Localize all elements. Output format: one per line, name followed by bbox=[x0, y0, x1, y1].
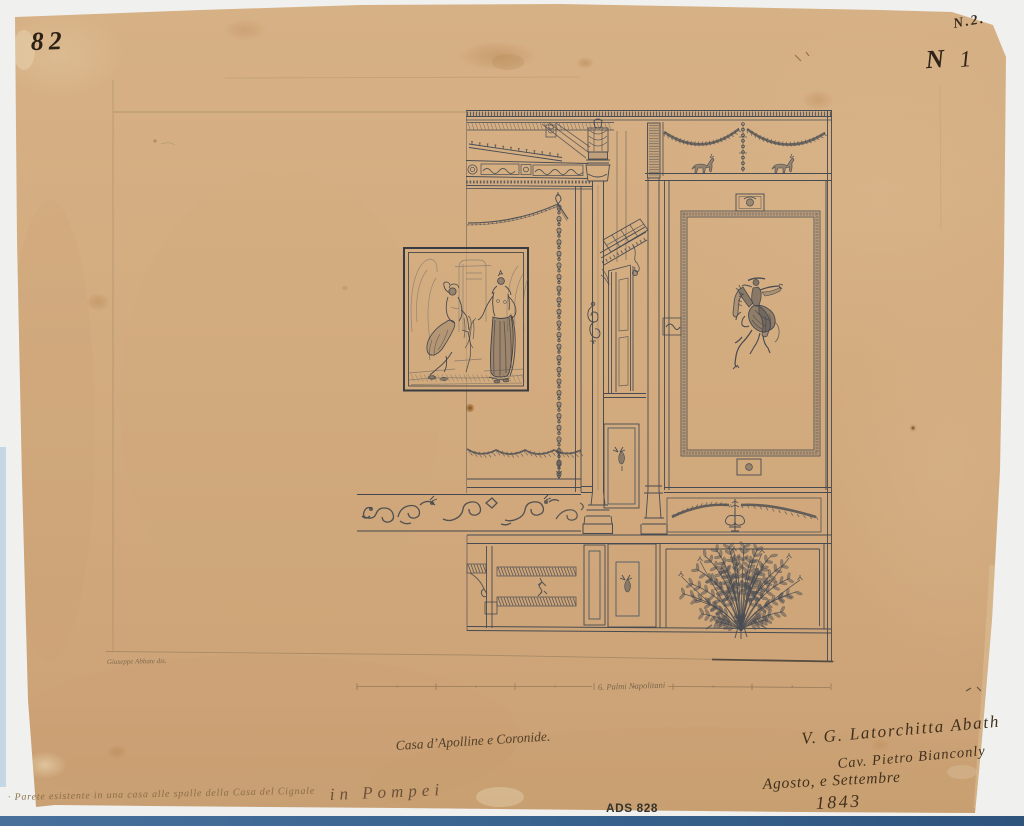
svg-text:82: 82 bbox=[30, 26, 67, 56]
svg-text:1843: 1843 bbox=[815, 791, 862, 813]
svg-text:ADS 828: ADS 828 bbox=[606, 801, 658, 815]
svg-text:Giuseppe Abbate dis.: Giuseppe Abbate dis. bbox=[107, 657, 167, 666]
svg-text:1: 1 bbox=[959, 46, 972, 72]
svg-text:N: N bbox=[924, 44, 947, 74]
